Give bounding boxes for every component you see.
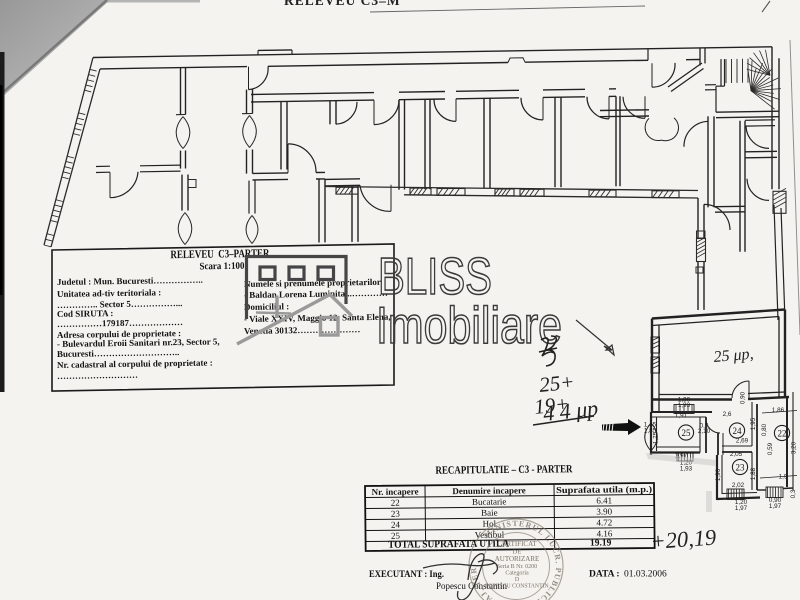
svg-text:DATA :: DATA : (589, 570, 620, 580)
svg-text:TOTAL SUPRAFATA UTILA: TOTAL SUPRAFATA UTILA (388, 538, 509, 550)
svg-text:Nr. incapere: Nr. incapere (372, 486, 419, 496)
svg-text:CERTIFICAT: CERTIFICAT (497, 540, 537, 548)
svg-text:6.41: 6.41 (596, 495, 612, 505)
svg-text:01.03.2006: 01.03.2006 (624, 570, 667, 580)
svg-text:AUTORIZARE: AUTORIZARE (495, 555, 540, 563)
svg-text:2,69: 2,69 (736, 438, 749, 445)
svg-text:EXECUTANT : Ing.: EXECUTANT : Ing. (369, 570, 444, 580)
svg-text:2,02: 2,02 (732, 482, 745, 489)
svg-text:1,91: 1,91 (675, 413, 688, 420)
svg-text:24: 24 (733, 426, 743, 436)
svg-text:2,10: 2,10 (698, 428, 711, 435)
svg-text:1,93: 1,93 (678, 402, 691, 409)
svg-text:2,05: 2,05 (730, 451, 743, 458)
svg-text:0,59: 0,59 (767, 442, 774, 455)
svg-text:Baie: Baie (481, 508, 498, 518)
svg-text:Categoria: Categoria (505, 571, 529, 577)
svg-text:3,20: 3,20 (791, 441, 798, 454)
svg-text:22: 22 (391, 498, 400, 508)
svg-text:1,96: 1,96 (715, 468, 722, 481)
svg-text:D: D (515, 577, 520, 583)
svg-text:Bucatarie: Bucatarie (472, 497, 507, 507)
svg-text:Domiciliul :: Domiciliul : (244, 301, 289, 312)
svg-text:0,80: 0,80 (761, 423, 768, 436)
svg-text:Seria B Nr. 0200: Seria B Nr. 0200 (497, 564, 537, 570)
svg-text:1,86: 1,86 (772, 407, 785, 414)
svg-text:RECAPITULATIE – C3 - PARTER: RECAPITULATIE – C3 - PARTER (435, 463, 573, 476)
svg-text:Scara 1:100: Scara 1:100 (199, 261, 244, 273)
svg-text:Denumire incapere: Denumire incapere (452, 485, 526, 496)
svg-text:1,97: 1,97 (769, 503, 782, 510)
svg-text:……………179187………………: ……………179187……………… (57, 317, 183, 329)
svg-text:4.72: 4.72 (596, 517, 612, 527)
svg-text:………………………: ……………………… (57, 370, 138, 381)
svg-text:1,95: 1,95 (750, 417, 757, 430)
svg-text:23: 23 (736, 463, 746, 473)
svg-text:3.90: 3.90 (596, 506, 612, 516)
svg-text:POPESCU CONSTANTIN: POPESCU CONSTANTIN (485, 584, 549, 590)
svg-text:Suprafata utila (m.p.): Suprafata utila (m.p.) (556, 484, 652, 495)
svg-text:0,90: 0,90 (740, 391, 747, 404)
svg-text:1,88: 1,88 (750, 467, 757, 480)
svg-text:2,6: 2,6 (723, 411, 732, 418)
svg-text:Unitatea ad-tiv teritoriala :: Unitatea ad-tiv teritoriala : (57, 287, 161, 299)
svg-text:0,3: 0,3 (790, 489, 797, 498)
svg-text:RELEVEU C3–PARTER: RELEVEU C3–PARTER (170, 248, 270, 262)
svg-text:RELEVEU C3–M: RELEVEU C3–M (284, 0, 401, 8)
svg-text:23: 23 (391, 509, 401, 519)
svg-text:19.19: 19.19 (590, 538, 612, 548)
svg-text:22: 22 (778, 429, 787, 439)
svg-text:24: 24 (391, 520, 401, 530)
svg-text:Bucuresti………………………..: Bucuresti……………………….. (57, 347, 179, 359)
svg-text:1,85: 1,85 (644, 428, 657, 435)
svg-text:1,97: 1,97 (735, 505, 748, 512)
svg-text:25 μp,: 25 μp, (713, 346, 754, 366)
svg-text:+20,19: +20,19 (650, 524, 717, 554)
svg-text:4.16: 4.16 (597, 528, 613, 538)
svg-text:1,93: 1,93 (680, 466, 693, 473)
svg-text:25: 25 (682, 428, 692, 438)
svg-text:Imobiliare: Imobiliare (376, 297, 562, 355)
